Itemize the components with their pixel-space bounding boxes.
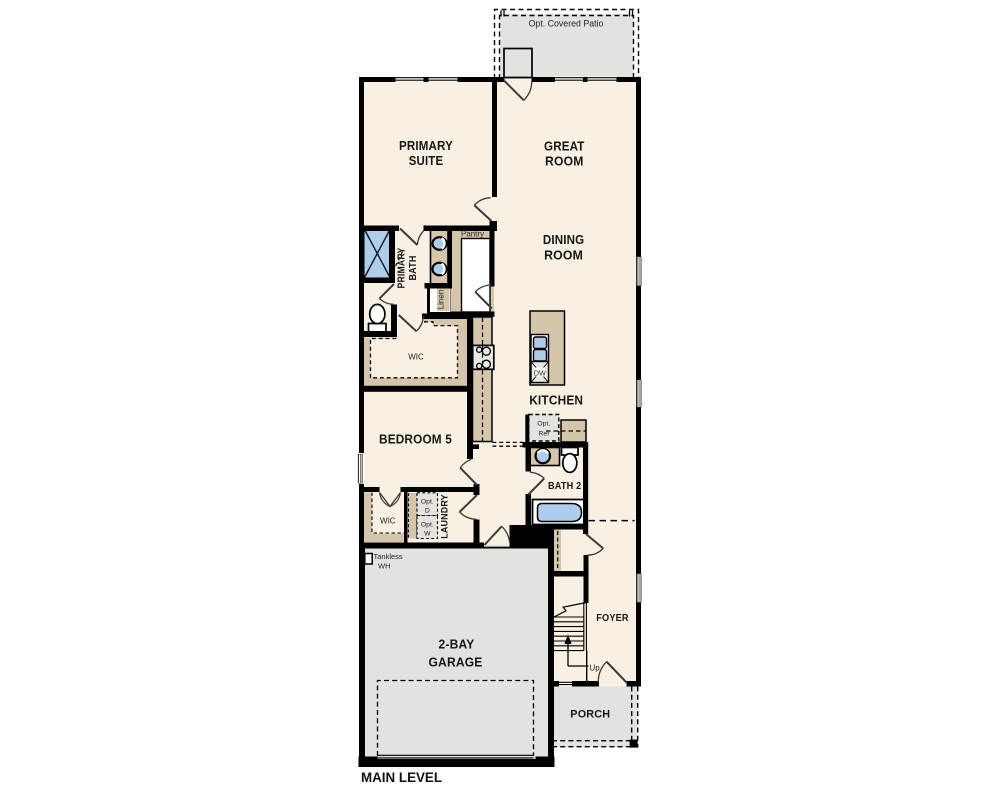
svg-text:KITCHEN: KITCHEN bbox=[529, 393, 583, 408]
svg-text:D: D bbox=[425, 508, 430, 515]
svg-text:Linen: Linen bbox=[437, 290, 446, 310]
svg-text:Opt. Covered Patio: Opt. Covered Patio bbox=[529, 19, 604, 29]
svg-text:PRIMARY: PRIMARY bbox=[399, 138, 453, 153]
svg-text:PORCH: PORCH bbox=[570, 709, 610, 721]
svg-text:GARAGE: GARAGE bbox=[429, 655, 483, 670]
svg-text:DINING: DINING bbox=[543, 232, 585, 247]
svg-text:FOYER: FOYER bbox=[596, 613, 629, 624]
svg-text:WIC: WIC bbox=[408, 353, 424, 362]
svg-text:Ref: Ref bbox=[539, 431, 550, 438]
svg-text:SUITE: SUITE bbox=[409, 153, 444, 168]
svg-text:WH: WH bbox=[378, 562, 391, 571]
svg-text:Up: Up bbox=[590, 664, 601, 673]
svg-text:Tankless: Tankless bbox=[374, 552, 403, 561]
svg-text:LAUNDRY: LAUNDRY bbox=[439, 494, 450, 539]
svg-text:PRIMARY: PRIMARY bbox=[396, 248, 407, 289]
svg-text:BATH 2: BATH 2 bbox=[548, 481, 582, 492]
svg-text:Opt.: Opt. bbox=[537, 421, 550, 428]
svg-text:Opt.: Opt. bbox=[421, 522, 434, 529]
svg-text:MAIN LEVEL: MAIN LEVEL bbox=[361, 769, 442, 785]
svg-text:Pantry: Pantry bbox=[461, 230, 484, 239]
svg-text:2-BAY: 2-BAY bbox=[439, 637, 475, 652]
svg-text:Opt.: Opt. bbox=[421, 499, 434, 506]
svg-text:ROOM: ROOM bbox=[545, 154, 584, 169]
svg-text:W: W bbox=[424, 531, 431, 538]
svg-text:ROOM: ROOM bbox=[544, 248, 583, 263]
svg-text:BEDROOM 5: BEDROOM 5 bbox=[379, 432, 452, 447]
svg-text:BATH: BATH bbox=[408, 256, 419, 281]
svg-text:GREAT: GREAT bbox=[544, 139, 585, 154]
svg-text:DW: DW bbox=[534, 369, 546, 378]
svg-text:WIC: WIC bbox=[380, 517, 396, 526]
